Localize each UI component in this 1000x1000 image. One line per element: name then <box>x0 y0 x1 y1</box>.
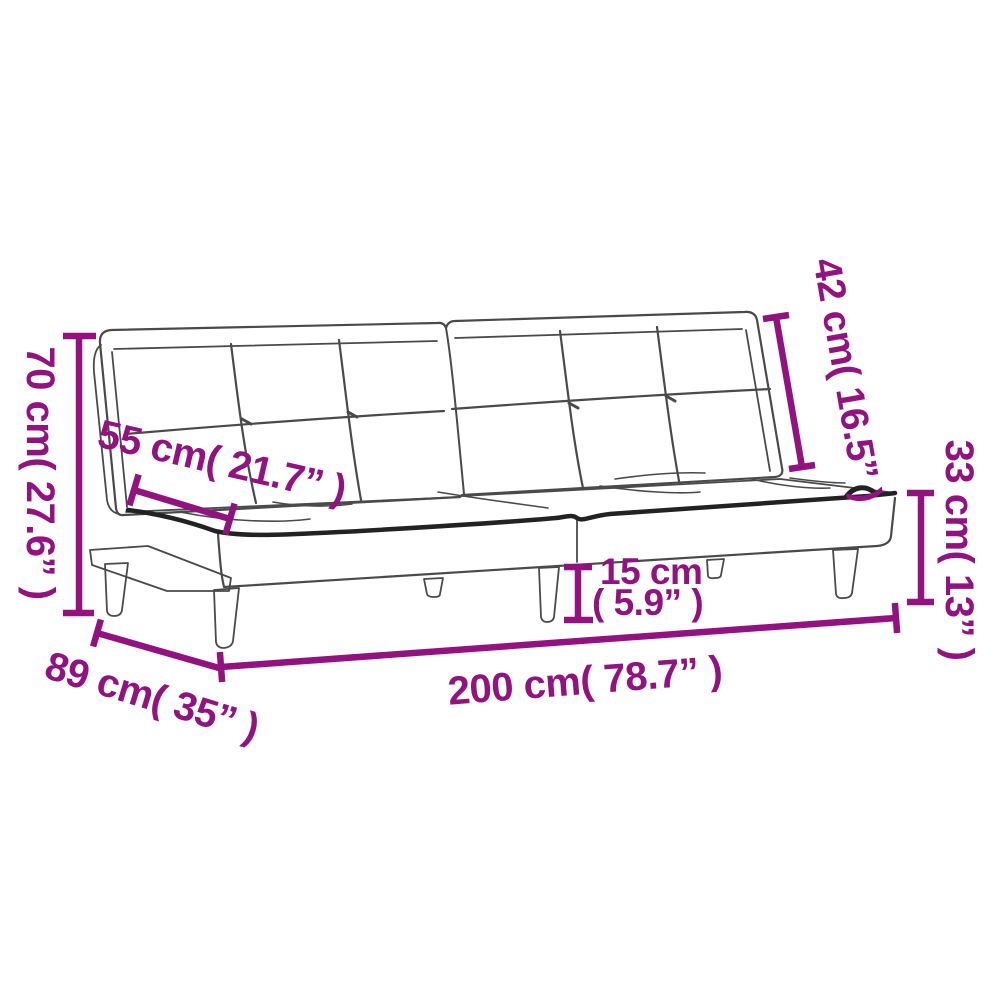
dimension-line-seat-height <box>907 493 934 602</box>
overall-height-label: 70 cm( 27.6” ) <box>20 346 60 599</box>
dimension-line-overall-depth <box>93 620 219 669</box>
dimension-line-clearance <box>564 567 593 620</box>
seat-height-label: 33 cm( 13” ) <box>939 440 979 661</box>
product-dimension-diagram: 70 cm( 27.6” ) 55 cm( 21.7” ) 42 cm( 16.… <box>0 0 1000 1000</box>
clearance-label: 15 cm ( 5.9” ) <box>592 556 703 618</box>
dimension-line-backrest-height <box>763 315 815 469</box>
dimension-line-overall-height <box>63 336 96 613</box>
sofa-piping <box>128 488 895 535</box>
clearance-value-inches: ( 5.9” ) <box>592 587 703 618</box>
sofa-legs <box>105 549 858 648</box>
